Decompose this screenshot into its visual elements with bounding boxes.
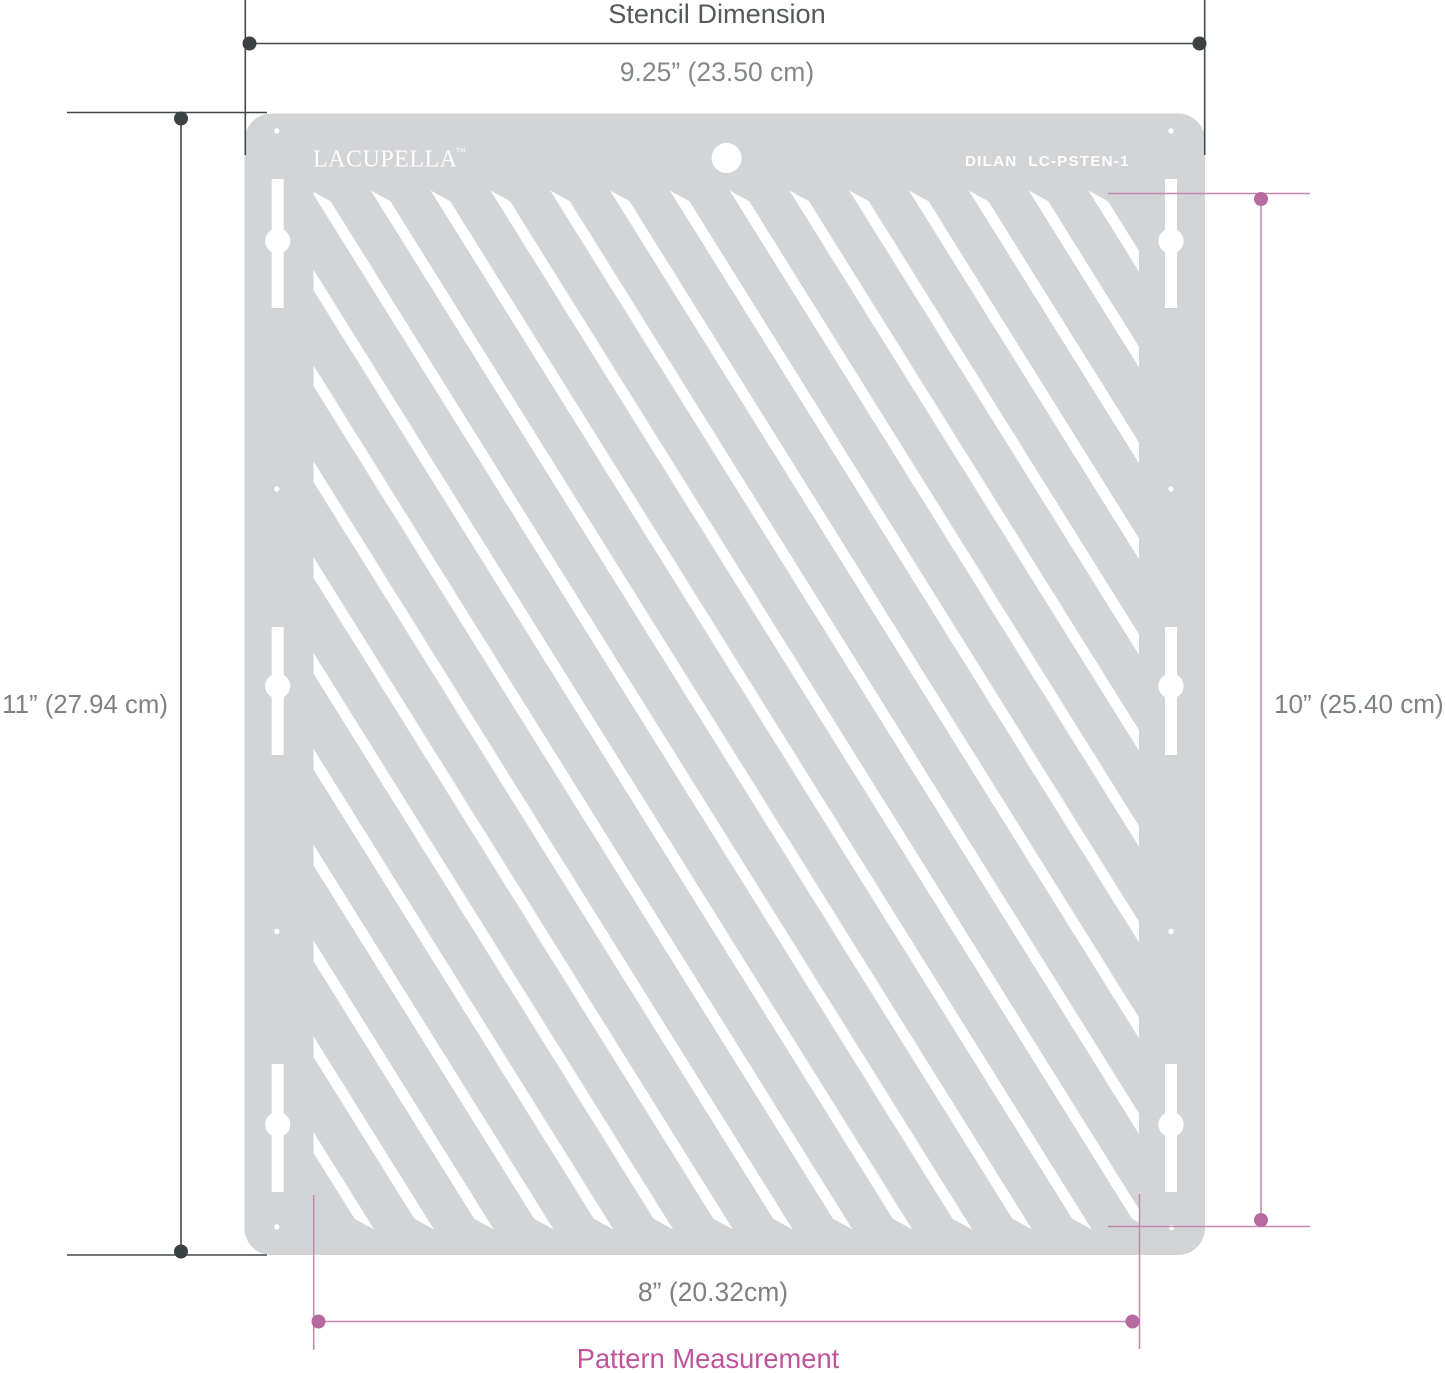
svg-text:TM: TM — [456, 147, 466, 154]
svg-text:9.25” (23.50 cm): 9.25” (23.50 cm) — [620, 57, 814, 87]
svg-text:Stencil Dimension: Stencil Dimension — [608, 0, 826, 29]
svg-text:11” (27.94 cm): 11” (27.94 cm) — [2, 691, 168, 719]
svg-text:8” (20.32cm): 8” (20.32cm) — [638, 1277, 788, 1307]
svg-text:DILAN LC-PSTEN-1: DILAN LC-PSTEN-1 — [965, 153, 1130, 170]
svg-text:Pattern Measurement: Pattern Measurement — [577, 1343, 840, 1373]
svg-text:10” (25.40 cm): 10” (25.40 cm) — [1274, 689, 1444, 719]
svg-text:LACUPELLA: LACUPELLA — [313, 147, 458, 173]
